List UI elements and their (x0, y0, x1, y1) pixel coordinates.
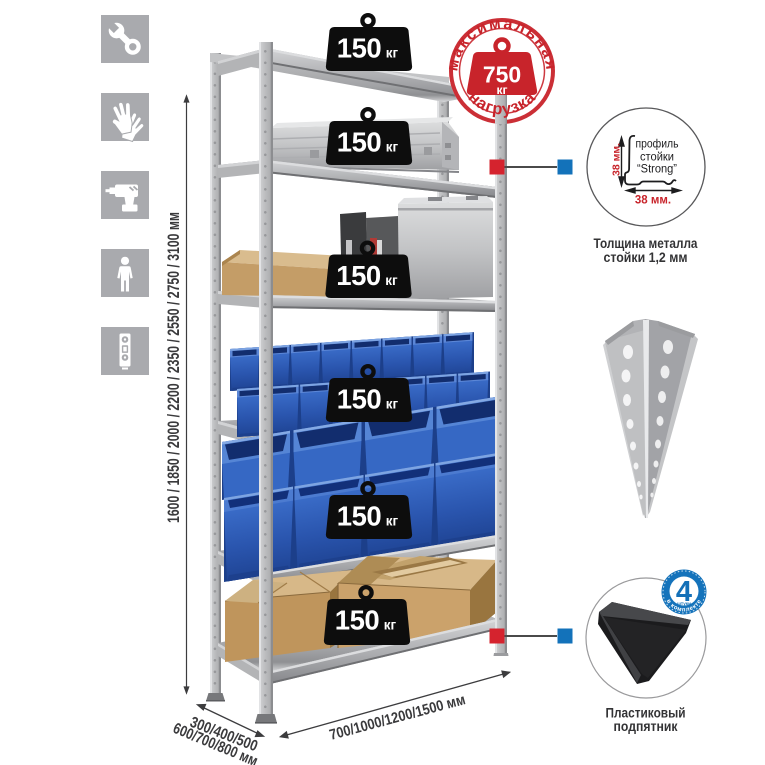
svg-text:150: 150 (337, 384, 382, 415)
svg-text:“Strong”: “Strong” (637, 164, 677, 176)
svg-text:кг: кг (384, 618, 397, 633)
svg-text:кг: кг (385, 273, 398, 288)
svg-text:150: 150 (337, 501, 382, 532)
svg-text:150: 150 (335, 605, 380, 636)
svg-text:38 мм.: 38 мм. (635, 195, 671, 207)
svg-text:стойки: стойки (640, 152, 674, 164)
svg-text:кг: кг (386, 140, 399, 155)
svg-text:подпятник: подпятник (614, 719, 678, 734)
svg-text:кг: кг (386, 46, 399, 61)
svg-text:кг: кг (386, 514, 399, 529)
svg-text:профиль: профиль (636, 139, 679, 151)
svg-text:Толщина металла: Толщина металла (594, 236, 698, 251)
svg-text:1600 / 1850 / 2000 / 2200 / 23: 1600 / 1850 / 2000 / 2200 / 2350 / 2550 … (164, 212, 183, 523)
svg-text:150: 150 (336, 260, 381, 291)
svg-text:150: 150 (337, 33, 382, 64)
svg-text:штуки: штуки (677, 601, 691, 606)
svg-text:кг: кг (496, 83, 507, 97)
svg-text:кг: кг (386, 397, 399, 412)
svg-text:150: 150 (337, 127, 382, 158)
svg-text:стойки 1,2 мм: стойки 1,2 мм (604, 250, 688, 265)
svg-text:38 мм.: 38 мм. (611, 143, 623, 176)
